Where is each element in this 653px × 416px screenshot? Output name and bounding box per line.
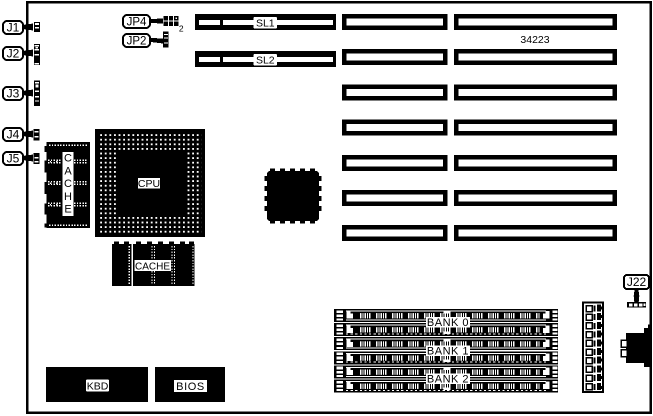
svg-text:A: A [64, 165, 72, 177]
svg-text:J5: J5 [7, 152, 20, 166]
svg-text:34223: 34223 [520, 34, 549, 46]
svg-text:J2: J2 [7, 47, 20, 61]
svg-text:C: C [64, 178, 72, 190]
svg-text:2: 2 [179, 23, 184, 33]
svg-text:BIOS: BIOS [176, 381, 205, 393]
svg-text:J22: J22 [627, 275, 647, 289]
svg-text:BANK 2: BANK 2 [427, 374, 469, 386]
svg-text:CPU: CPU [138, 178, 160, 190]
svg-text:H: H [64, 191, 72, 203]
svg-text:KBD: KBD [87, 380, 109, 392]
svg-text:J3: J3 [7, 87, 20, 101]
svg-text:CACHE: CACHE [135, 261, 170, 272]
svg-text:SL1: SL1 [256, 17, 275, 29]
svg-text:J4: J4 [7, 128, 20, 142]
svg-text:SL2: SL2 [256, 54, 275, 66]
svg-text:JP2: JP2 [127, 36, 147, 48]
svg-text:C: C [64, 153, 72, 165]
svg-text:JP4: JP4 [127, 17, 147, 29]
svg-text:BANK 0: BANK 0 [427, 317, 469, 329]
svg-text:BANK 1: BANK 1 [427, 345, 469, 357]
svg-text:E: E [64, 204, 71, 216]
svg-text:J1: J1 [7, 21, 20, 35]
